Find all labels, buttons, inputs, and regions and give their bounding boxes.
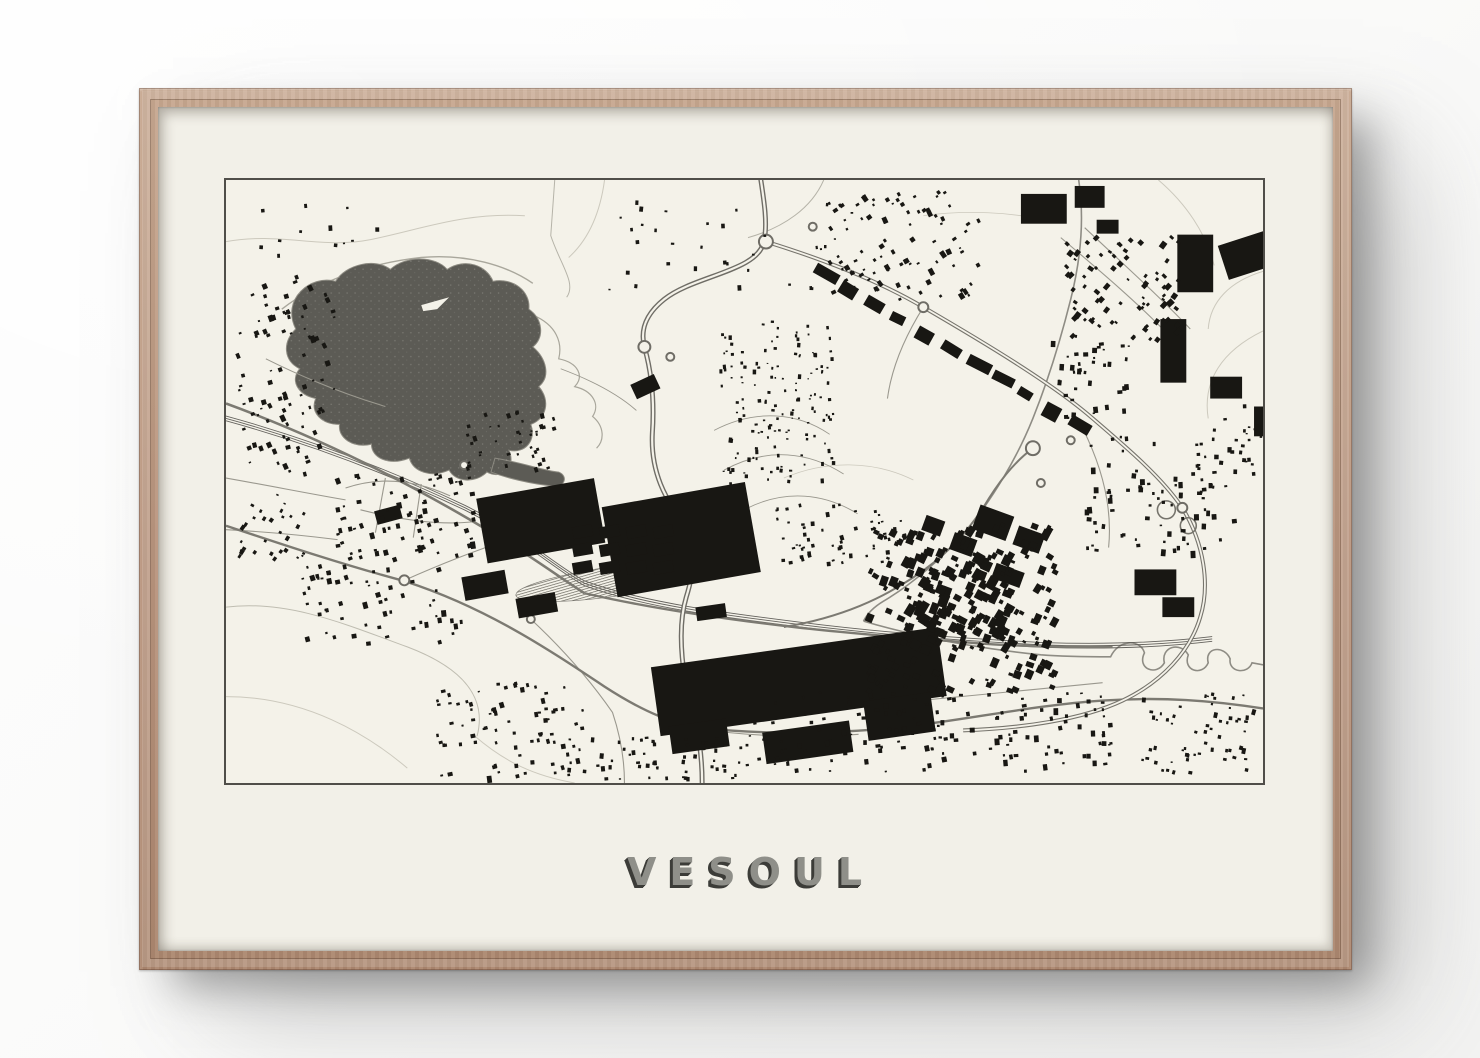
interchange-loop [1157, 501, 1175, 519]
poster-title: VESOUL [614, 853, 875, 891]
title-row: VESOUL [224, 853, 1265, 891]
wall: VESOUL [0, 0, 1480, 1058]
map-panel [224, 178, 1265, 785]
city-map [226, 180, 1263, 783]
poster-paper: VESOUL [158, 107, 1333, 951]
poster-frame: VESOUL [139, 88, 1352, 970]
